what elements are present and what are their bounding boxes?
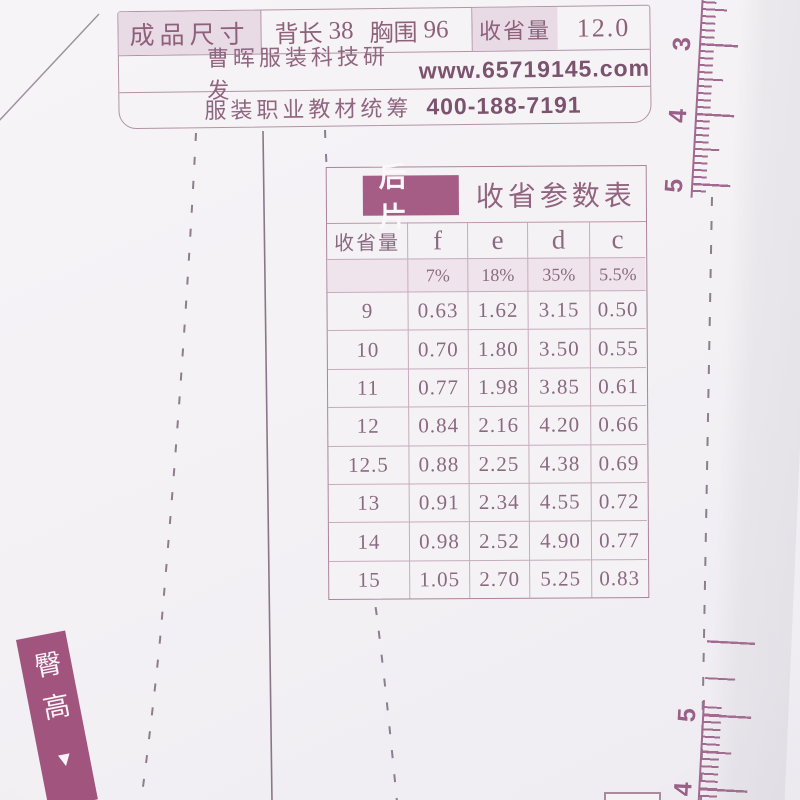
table-cell: 12 xyxy=(328,407,408,446)
ruler-bottom: 54 xyxy=(697,700,783,800)
hip-height-text: 臀高 xyxy=(24,647,79,739)
table-cell: 4.55 xyxy=(529,482,591,521)
table-cell: 0.72 xyxy=(591,482,647,521)
ratio-cell: 5.5% xyxy=(589,257,645,290)
table-cell: 0.84 xyxy=(408,406,468,445)
table-cell: 0.83 xyxy=(591,559,647,598)
dart-amount-label: 收省量 xyxy=(472,7,558,51)
table-cell: 0.69 xyxy=(590,444,646,483)
table-cell: 10 xyxy=(328,330,408,369)
ruler-number: 4 xyxy=(670,775,697,800)
table-cell: 1.05 xyxy=(409,560,469,599)
table-cell: 9 xyxy=(327,291,407,330)
table-cell: 3.50 xyxy=(528,329,590,368)
table-grid: 收省量fedc7%18%35%5.5%90.631.623.150.50100.… xyxy=(327,222,648,599)
spec-bar: 成品尺寸 背长 38 胸围 96 收省量 12.0 曹晖服装科技研发 www.6… xyxy=(117,5,651,130)
partial-box xyxy=(604,792,661,800)
table-cell: 15 xyxy=(329,560,409,599)
table-title-row: 后片 收省参数表 xyxy=(327,166,646,224)
column-header-cell: 收省量 xyxy=(327,223,407,258)
table-cell: 0.77 xyxy=(591,520,647,559)
table-cell: 1.98 xyxy=(468,368,528,407)
column-header-cell: e xyxy=(467,223,527,258)
table-cell: 14 xyxy=(329,522,409,561)
ruler-number: 4 xyxy=(664,102,691,129)
table-cell: 1.80 xyxy=(468,329,528,368)
table-cell: 13 xyxy=(329,483,409,522)
piece-badge: 后片 xyxy=(363,175,459,216)
ruler-top: 345 xyxy=(691,0,772,202)
table-cell: 0.50 xyxy=(589,290,645,329)
table-cell: 0.70 xyxy=(408,330,468,369)
center-back-line xyxy=(263,131,272,800)
support-phone: 400-188-7191 xyxy=(426,91,582,120)
ratio-cell: 18% xyxy=(467,258,527,291)
table-cell: 2.25 xyxy=(468,444,528,483)
table-cell: 0.91 xyxy=(409,483,469,522)
seam-line-dashed-left xyxy=(141,133,196,800)
table-cell: 0.98 xyxy=(409,521,469,560)
ratio-cell xyxy=(327,258,407,291)
table-title: 收省参数表 xyxy=(476,174,636,215)
bust-value: 96 xyxy=(423,16,448,44)
table-cell: 0.77 xyxy=(408,368,468,407)
table-cell: 0.63 xyxy=(407,291,467,330)
table-cell: 0.55 xyxy=(590,328,646,367)
column-header-cell: f xyxy=(407,223,467,258)
ratio-cell: 7% xyxy=(407,258,467,291)
table-cell: 2.16 xyxy=(468,406,528,445)
table-cell: 4.20 xyxy=(528,406,590,445)
ruler-number: 5 xyxy=(660,172,687,199)
table-cell: 0.61 xyxy=(590,367,646,406)
ruler-number: 5 xyxy=(674,702,701,729)
table-cell: 0.88 xyxy=(408,445,468,484)
table-cell: 1.62 xyxy=(467,291,527,330)
ratio-cell: 35% xyxy=(527,257,589,290)
dart-amount-value: 12.0 xyxy=(557,6,650,50)
table-cell: 11 xyxy=(328,368,408,407)
brand-site: www.65719145.com xyxy=(419,54,651,84)
column-header-cell: d xyxy=(527,222,589,257)
table-cell: 2.70 xyxy=(469,559,529,598)
table-cell: 2.52 xyxy=(469,521,529,560)
support-row: 服装职业教材统筹 400-188-7191 xyxy=(119,87,650,127)
table-cell: 4.38 xyxy=(528,444,590,483)
ruler-number: 3 xyxy=(668,30,695,57)
table-cell: 0.66 xyxy=(590,405,646,444)
down-arrow-icon: ▼ xyxy=(53,747,77,773)
table-cell: 12.5 xyxy=(328,445,408,484)
table-cell: 3.15 xyxy=(527,290,589,329)
shoulder-line xyxy=(0,14,99,123)
pattern-sheet-photo: 成品尺寸 背长 38 胸围 96 收省量 12.0 曹晖服装科技研发 www.6… xyxy=(0,0,800,800)
table-cell: 4.90 xyxy=(529,521,591,560)
dart-parameter-table: 后片 收省参数表 收省量fedc7%18%35%5.5%90.631.623.1… xyxy=(326,165,650,600)
support-name: 服装职业教材统筹 xyxy=(204,91,412,126)
table-cell: 2.34 xyxy=(469,483,529,522)
table-cell: 5.25 xyxy=(529,559,591,598)
table-cell: 3.85 xyxy=(528,367,590,406)
column-header-cell: c xyxy=(589,222,645,257)
